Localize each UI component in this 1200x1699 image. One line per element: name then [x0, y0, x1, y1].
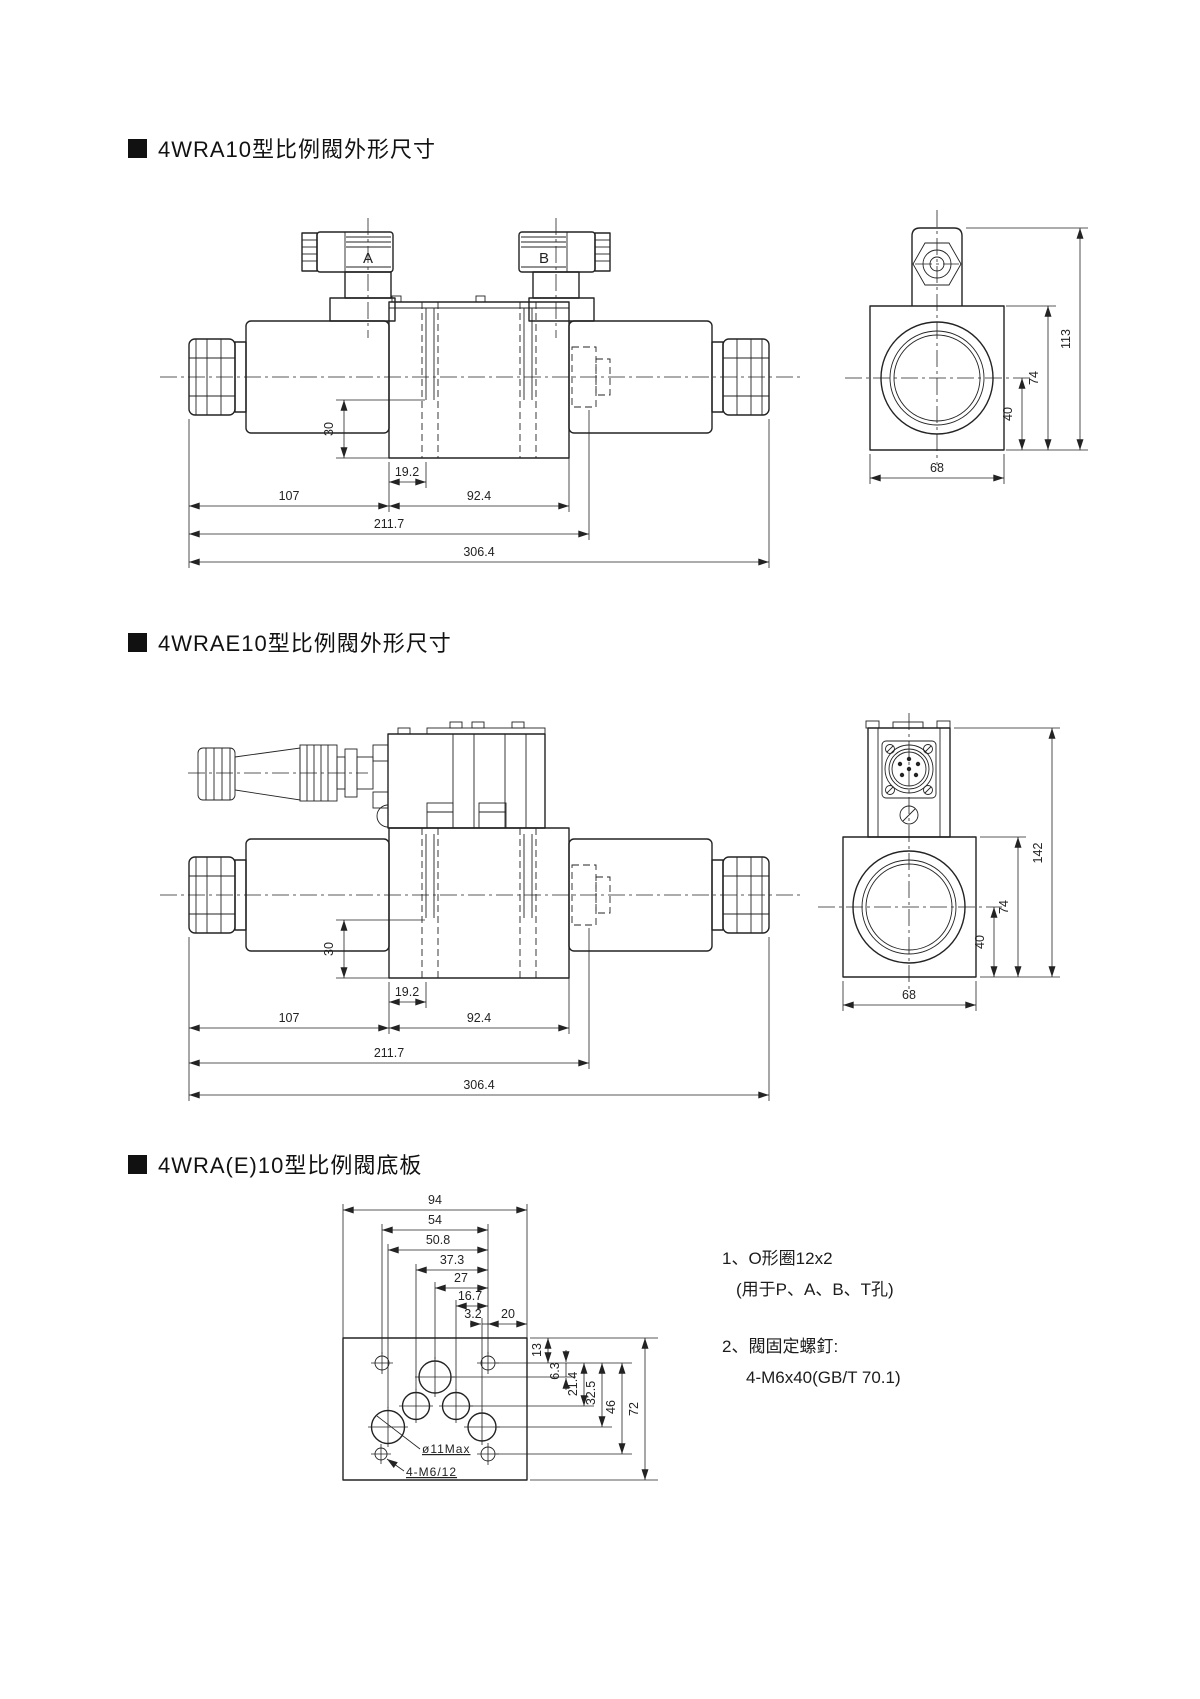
dim-68: 68	[902, 988, 916, 1002]
section-title-baseplate: 4WRA(E)10型比例閥底板	[128, 1148, 422, 1180]
connector-a: A	[302, 218, 395, 338]
hole-diameter-label: ø11Max	[422, 1442, 470, 1456]
screw-spec-label: 4-M6/12	[406, 1465, 457, 1479]
dim-211-7: 211.7	[374, 517, 404, 531]
section-title-4wra10: 4WRA10型比例閥外形尺寸	[128, 132, 436, 164]
baseplate-labels: ø11Max 4-M6/12	[377, 1416, 470, 1479]
electronics-module	[866, 721, 950, 837]
side-view-4wrae10: 142 74 40 68	[818, 713, 1060, 1011]
solenoid-b-label: B	[539, 250, 549, 267]
dim-107: 107	[279, 489, 300, 503]
dimensions-front-1: 30 19.2 107 92.4 211.7 306.4	[189, 400, 769, 568]
dim-113: 113	[1059, 329, 1073, 349]
mounting-bolt-holes	[422, 828, 536, 978]
dim-211-7: 211.7	[374, 1046, 404, 1060]
section-title-text: 4WRA10型比例閥外形尺寸	[158, 132, 436, 164]
dim-37-3: 37.3	[440, 1253, 464, 1267]
dim-54: 54	[428, 1213, 442, 1227]
drawing-4wra10: A B	[0, 170, 1200, 610]
dim-74: 74	[997, 900, 1011, 914]
dim-74: 74	[1027, 371, 1041, 385]
dim-94: 94	[428, 1193, 442, 1207]
electronics-box	[373, 722, 545, 828]
dim-19-2: 19.2	[395, 985, 419, 999]
dimensions-front-2: 30 19.2 107 92.4 211.7 306.4	[189, 920, 769, 1101]
note-screws-line1: 2、閥固定螺釘:	[722, 1331, 901, 1362]
baseplate-extension-lines	[343, 1204, 658, 1480]
dim-6-3: 6.3	[548, 1362, 562, 1379]
catalog-page: 4WRA10型比例閥外形尺寸	[0, 0, 1200, 1699]
dim-306-4: 306.4	[463, 545, 494, 559]
mounting-bolt-holes	[422, 302, 536, 458]
dim-21-4: 21.4	[566, 1372, 580, 1396]
note-screws-line2: 4-M6x40(GB/T 70.1)	[722, 1362, 901, 1393]
front-view-4wra10: A B	[160, 218, 800, 568]
dim-3-2: 3.2	[464, 1307, 481, 1321]
note-oring-line2: (用于P、A、B、T孔)	[722, 1274, 894, 1305]
dim-92-4: 92.4	[467, 1011, 491, 1025]
dim-107: 107	[279, 1011, 300, 1025]
dim-92-4: 92.4	[467, 489, 491, 503]
section-bullet-icon	[128, 139, 147, 158]
dim-40: 40	[973, 935, 987, 949]
dim-68: 68	[930, 461, 944, 475]
baseplate-dimensions-right: 13 6.3 21.4 32.5 46 72	[530, 1338, 645, 1480]
valve-body	[389, 828, 569, 978]
connector-b: B	[519, 218, 610, 338]
section-bullet-icon	[128, 1155, 147, 1174]
dim-30: 30	[322, 942, 336, 956]
dim-306-4: 306.4	[463, 1078, 494, 1092]
drawing-baseplate: 94 54 50.8 37.3 27 16.7 3.2 20 13 6.3	[0, 1190, 1200, 1610]
dim-20: 20	[501, 1307, 515, 1321]
dim-30: 30	[322, 422, 336, 436]
front-view-4wrae10: 30 19.2 107 92.4 211.7 306.4	[160, 722, 800, 1101]
dim-142: 142	[1031, 843, 1045, 864]
note-oring-line1: 1、O形圈12x2	[722, 1243, 894, 1274]
dim-19-2: 19.2	[395, 465, 419, 479]
dim-27: 27	[454, 1271, 468, 1285]
dim-16-7: 16.7	[458, 1289, 482, 1303]
dim-40: 40	[1001, 407, 1015, 421]
solenoid-a-label: A	[363, 250, 373, 267]
proportional-adjuster	[188, 745, 373, 801]
note-screws: 2、閥固定螺釘: 4-M6x40(GB/T 70.1)	[722, 1331, 901, 1393]
dim-13: 13	[530, 1343, 544, 1357]
dim-46: 46	[604, 1400, 618, 1414]
note-oring: 1、O形圈12x2 (用于P、A、B、T孔)	[722, 1243, 894, 1305]
dim-72: 72	[627, 1402, 641, 1416]
drawing-4wrae10: 30 19.2 107 92.4 211.7 306.4	[0, 645, 1200, 1125]
side-view-4wra10: 113 74 40 68	[845, 210, 1088, 484]
dim-50-8: 50.8	[426, 1233, 450, 1247]
dim-32-5: 32.5	[584, 1381, 598, 1405]
section-title-text: 4WRA(E)10型比例閥底板	[158, 1148, 422, 1180]
